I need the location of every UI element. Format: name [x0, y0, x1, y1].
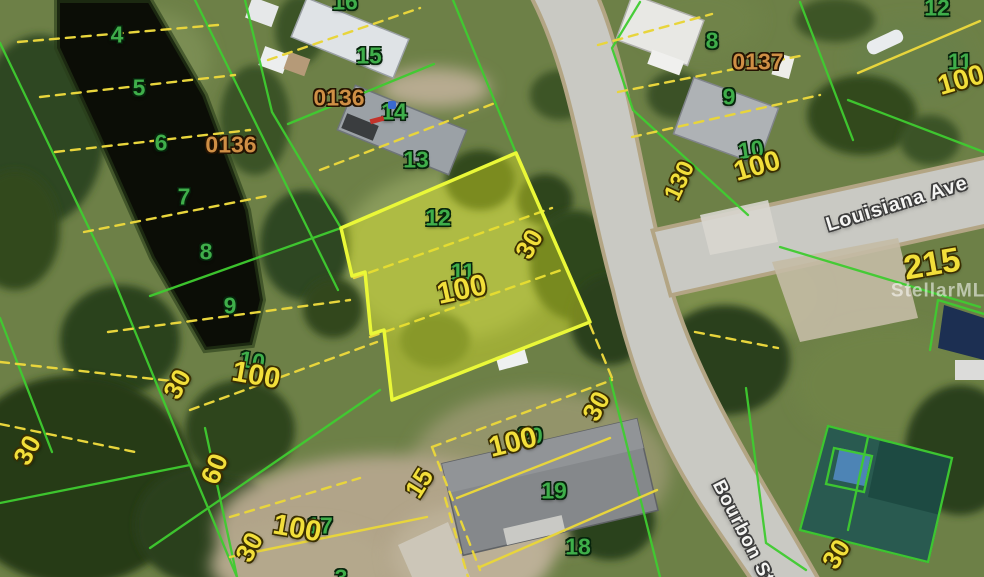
lot-number-label: 19: [541, 480, 567, 503]
street-name-label: Louisiana Ave: [824, 173, 971, 235]
dimension-label: 130: [661, 158, 700, 204]
dimension-label: 30: [578, 387, 615, 425]
lot-number-label: 8: [200, 241, 213, 264]
street-name-label: Bourbon St: [709, 477, 777, 577]
watermark: StellarMLS: [891, 282, 984, 301]
plat-number-label: 0136: [313, 87, 364, 110]
lot-number-label: 9: [224, 295, 237, 318]
dimension-label: 100: [935, 60, 984, 100]
map-labels: 4567891016151413121189101211201918173100…: [0, 0, 984, 577]
dimension-label: 60: [197, 450, 233, 488]
lot-number-label: 7: [178, 186, 191, 209]
dimension-label: 30: [817, 535, 854, 573]
dimension-label: 215: [901, 242, 963, 285]
plat-number-label: 0136: [205, 134, 256, 157]
dimension-label: 100: [271, 511, 324, 548]
lot-number-label: 4: [111, 24, 124, 47]
lot-number-label: 8: [706, 30, 719, 53]
dimension-label: 100: [434, 270, 489, 310]
lot-number-label: 18: [565, 536, 591, 559]
lot-number-label: 12: [425, 207, 451, 230]
dimension-label: 30: [9, 431, 46, 469]
lot-number-label: 16: [332, 0, 358, 14]
dimension-label: 30: [159, 365, 196, 403]
lot-number-label: 15: [356, 45, 382, 68]
aerial-map: 4567891016151413121189101211201918173100…: [0, 0, 984, 577]
dimension-label: 100: [230, 358, 283, 395]
lot-number-label: 6: [155, 132, 168, 155]
lot-number-label: 3: [335, 567, 348, 577]
blue-dot-marker: [388, 101, 396, 109]
dimension-label: 100: [486, 423, 540, 463]
lot-number-label: 13: [403, 149, 429, 172]
lot-number-label: 12: [924, 0, 950, 20]
dimension-label: 15: [400, 464, 437, 502]
plat-number-label: 0137: [732, 51, 783, 74]
lot-number-label: 5: [133, 77, 146, 100]
lot-number-label: 9: [723, 86, 736, 109]
dimension-label: 30: [231, 528, 268, 566]
dimension-label: 30: [511, 225, 548, 263]
